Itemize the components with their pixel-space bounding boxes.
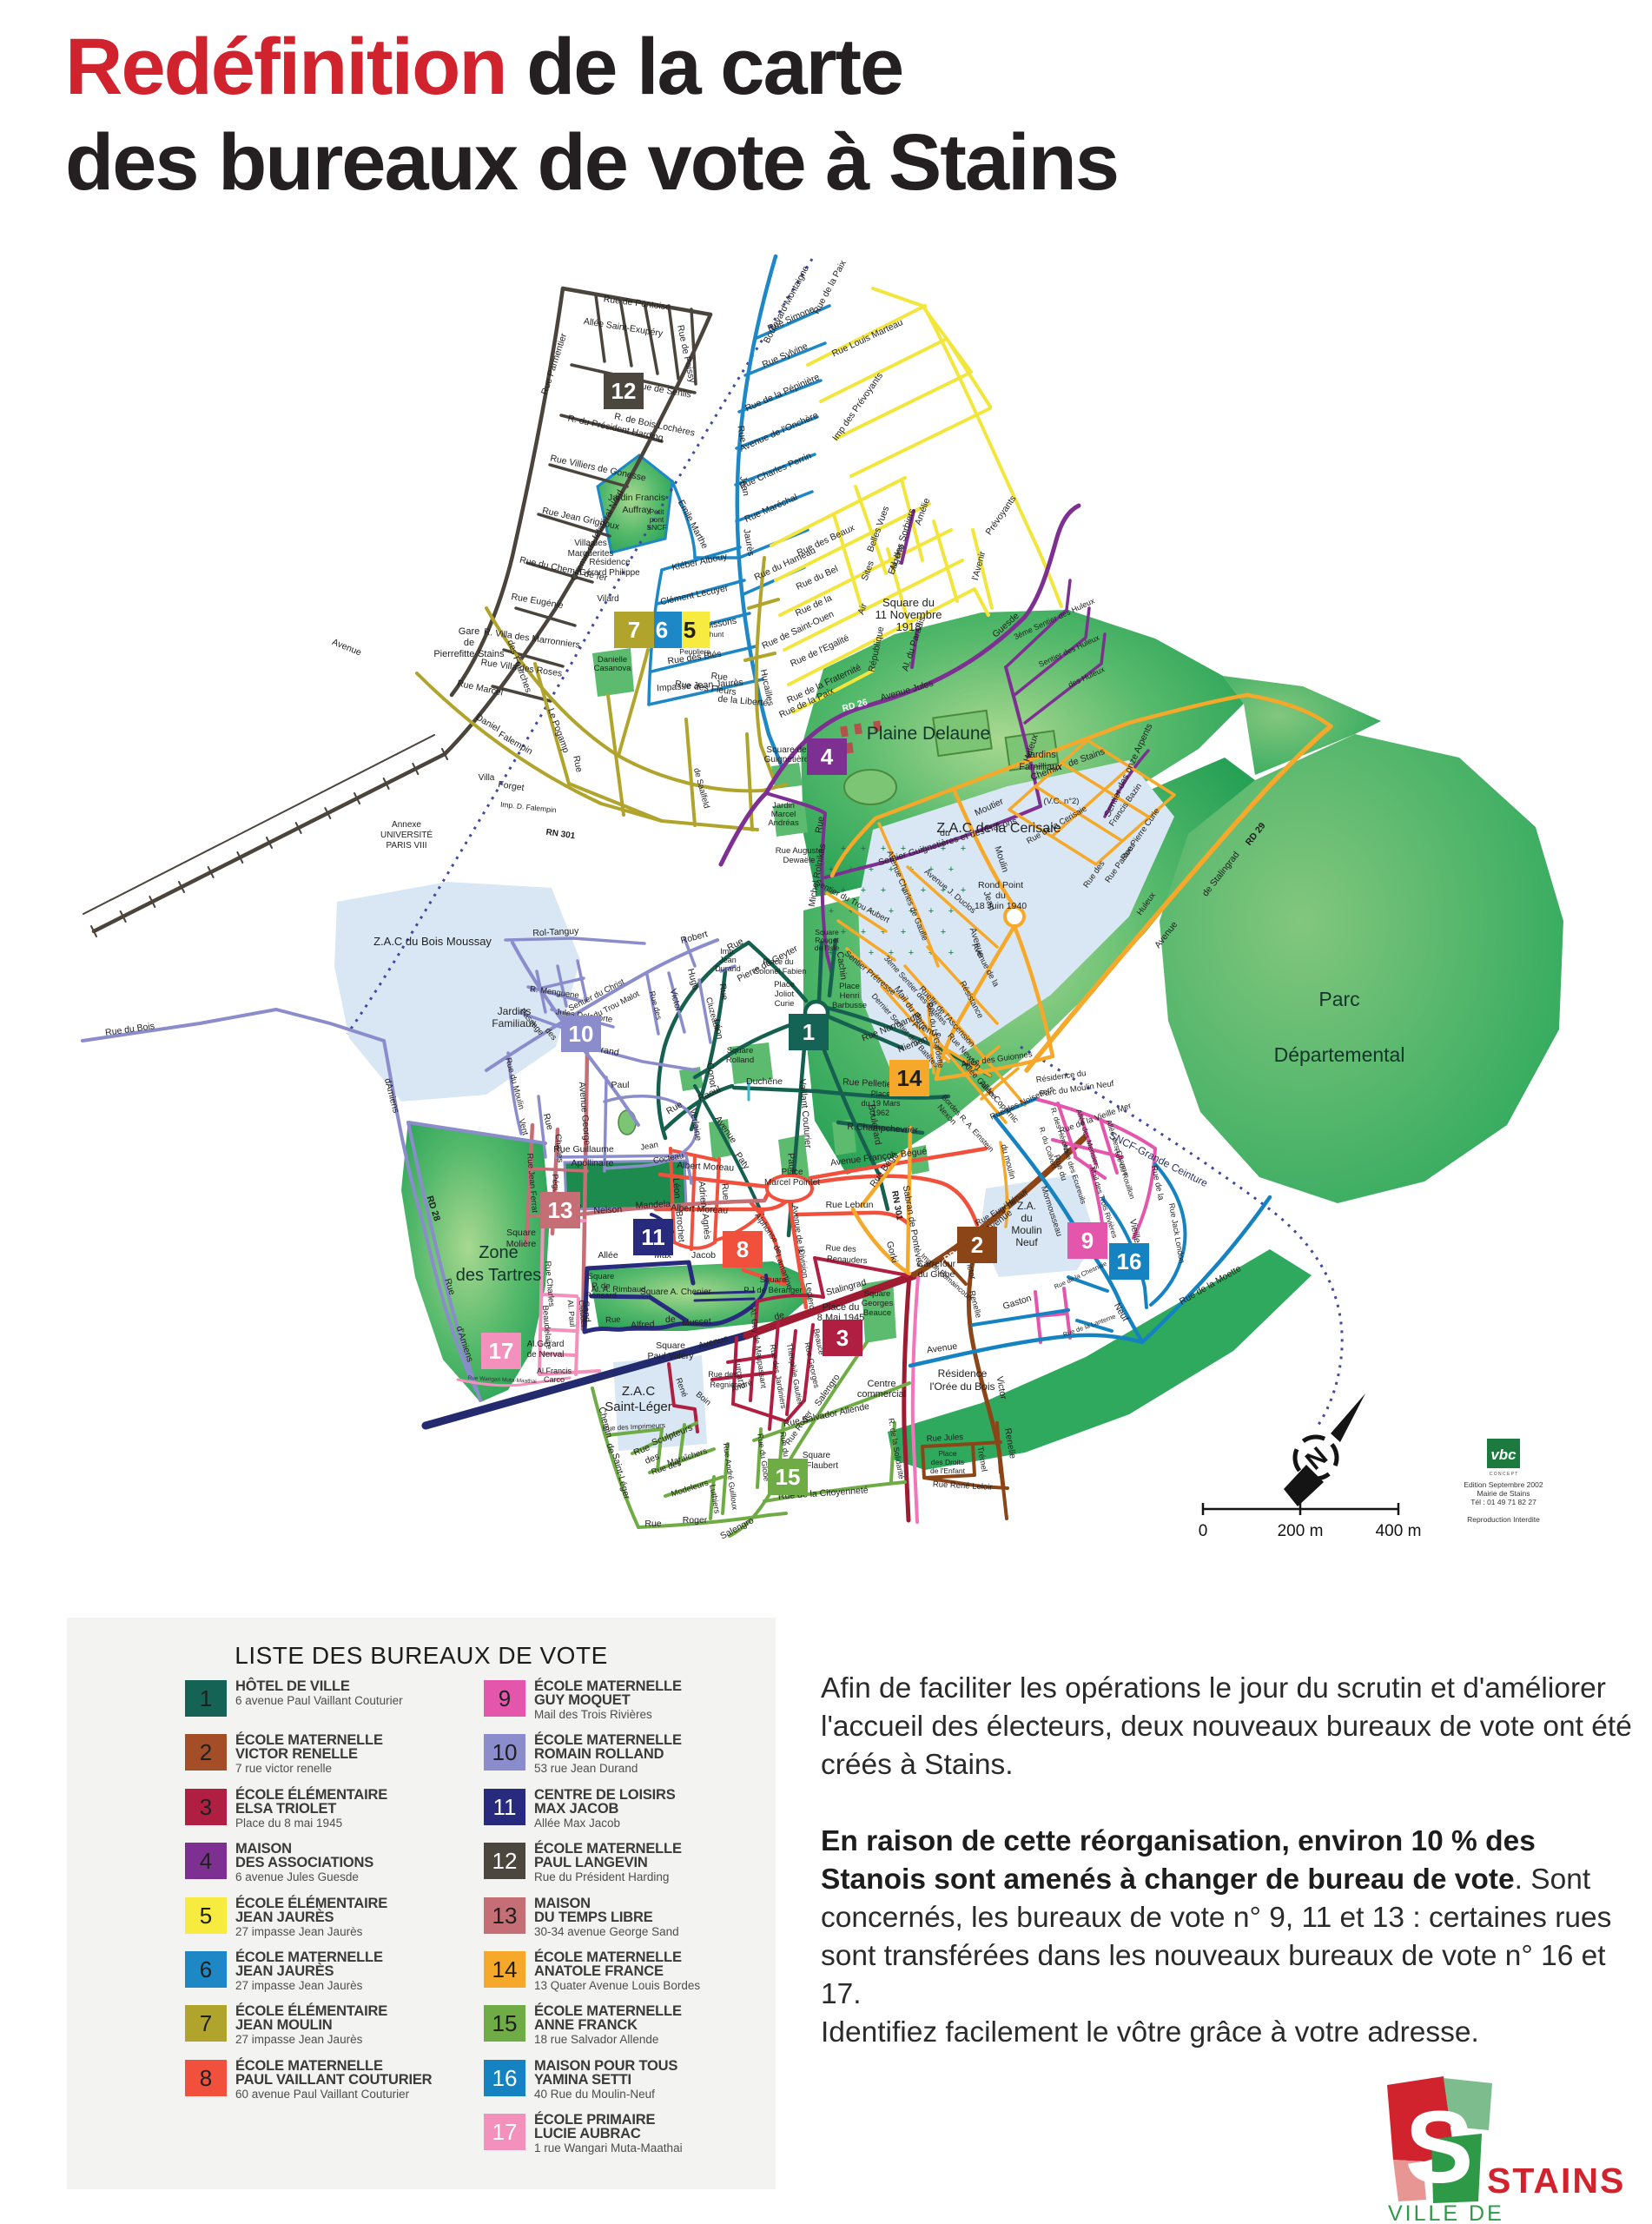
svg-text:0: 0 [1199, 1522, 1208, 1540]
map-label: Rolland [726, 1056, 754, 1065]
legend-item-name: MAX JACOB [534, 1802, 795, 1816]
map-label: PARIS VIII [386, 841, 426, 851]
map-label: des Droits [931, 1458, 964, 1466]
legend-color-square: 2 [185, 1734, 227, 1771]
legend-item-name: ÉCOLE ÉLÉMENTAIRE [235, 2004, 496, 2018]
map-label: Rue des [708, 1370, 737, 1379]
map-label: Zone [479, 1243, 519, 1262]
map-label: Joliot [775, 990, 795, 999]
map-label: Square [760, 1275, 787, 1285]
legend-color-square: 4 [185, 1843, 227, 1879]
map-label: Rue Lebrun [826, 1200, 874, 1210]
map-label: Curie [775, 999, 795, 1009]
legend-item-address: 7 rue victor renelle [235, 1762, 496, 1775]
legend-item-text: ÉCOLE MATERNELLEANATOLE FRANCE13 Quater … [534, 1950, 795, 1992]
legend-color-square: 5 [185, 1897, 227, 1934]
legend-item-name: GUY MOQUET [534, 1693, 795, 1707]
map-label: Square [864, 1289, 891, 1299]
map-label: Beauce [863, 1308, 891, 1318]
map-label: SNCF [646, 523, 666, 532]
svg-text:C O N C E P T: C O N C E P T [1490, 1472, 1518, 1477]
map-label: Rue Sylvine [761, 341, 809, 370]
svg-text:Reproduction Interdite: Reproduction Interdite [1467, 1515, 1540, 1524]
map-label: du Globe [918, 1269, 955, 1280]
svg-text:+: + [869, 948, 874, 958]
legend-item-address: 27 impasse Jean Jaurès [235, 1925, 496, 1938]
svg-text:2: 2 [971, 1232, 983, 1258]
map-label: Rue du Bois [104, 1021, 155, 1038]
map-label: Auffray [622, 505, 651, 515]
legend-item-11: 11CENTRE DE LOISIRSMAX JACOBAllée Max Ja… [484, 1789, 814, 1841]
map-label: Al. Paul [566, 1300, 578, 1327]
map-label: Z.A.C [622, 1384, 656, 1399]
map-marker-12: 12 [604, 373, 644, 409]
legend-item-text: HÔTEL DE VILLE6 avenue Paul Vaillant Cou… [235, 1679, 496, 1707]
map-label: Andréas [768, 818, 799, 828]
scale-bar [1203, 1503, 1398, 1515]
map-label: du [1021, 1212, 1032, 1224]
map-label: Square [656, 1340, 685, 1351]
legend-color-square: 11 [484, 1789, 525, 1825]
map-label: Rue René Leloir [933, 1479, 993, 1493]
map-marker-9: 9 [1067, 1222, 1107, 1259]
map-label: de Nerval [527, 1350, 565, 1360]
svg-text:+: + [928, 906, 934, 917]
map-label: Rue Guillaume [553, 1144, 614, 1155]
legend-item-name: ÉCOLE MATERNELLE [235, 1950, 496, 1964]
map-label: Agnès [700, 1213, 713, 1240]
map-label: Parc [1318, 988, 1359, 1010]
legend-item-text: ÉCOLE MATERNELLEVICTOR RENELLE7 rue vict… [235, 1733, 496, 1775]
legend-color-square: 1 [185, 1680, 227, 1717]
map-label: Jaurès [741, 528, 756, 557]
legend-item-12: 12ÉCOLE MATERNELLEPAUL LANGEVINRue du Pr… [484, 1843, 814, 1895]
legend-item-text: CENTRE DE LOISIRSMAX JACOBAllée Max Jaco… [534, 1788, 795, 1830]
map-label: Duchêne [746, 1076, 783, 1087]
title-highlight: Redéfinition [65, 23, 506, 111]
map-label: Centre [867, 1379, 895, 1389]
legend-item-16: 16MAISON POUR TOUSYAMINA SETTI40 Rue du … [484, 2060, 814, 2112]
legend-item-address: 6 avenue Jules Guesde [235, 1870, 496, 1883]
legend-item-name: YAMINA SETTI [534, 2073, 795, 2087]
legend-item-15: 15ÉCOLE MATERNELLEANNE FRANCK18 rue Salv… [484, 2005, 814, 2057]
svg-text:+: + [861, 844, 866, 854]
map-label: Al.Gérard [527, 1340, 565, 1349]
map-label: Jardins [1025, 750, 1056, 760]
map-label: Verlaine [688, 1108, 704, 1142]
compass: N [1284, 1393, 1365, 1506]
svg-text:+: + [948, 948, 954, 958]
legend-item-name: JEAN MOULIN [235, 2018, 496, 2032]
svg-text:+: + [921, 885, 926, 896]
map-marker-3: 3 [823, 1320, 862, 1356]
map-label: Victor [668, 988, 684, 1013]
map-marker-15: 15 [768, 1459, 808, 1495]
page-title: Redéfinition de la carte des bureaux de … [65, 19, 1118, 210]
legend-item-name: PAUL LANGEVIN [534, 1856, 795, 1870]
map-label: Square [588, 1272, 615, 1281]
map-label: Neuf [1015, 1236, 1038, 1248]
legend-item-name: ELSA TRIOLET [235, 1802, 496, 1816]
legend-item-address: 6 avenue Paul Vaillant Couturier [235, 1694, 496, 1707]
legend-item-8: 8ÉCOLE MATERNELLEPAUL VAILLANT COUTURIER… [185, 2060, 515, 2112]
legend-color-square: 14 [484, 1951, 525, 1988]
map-label: de l'Enfant [930, 1466, 966, 1475]
legend-item-name: VICTOR RENELLE [235, 1747, 496, 1761]
svg-text:400 m: 400 m [1376, 1522, 1422, 1540]
legend-color-square: 8 [185, 2060, 227, 2096]
map-label: de l'Isle [815, 943, 840, 952]
legend-item-name: ÉCOLE MATERNELLE [534, 1733, 795, 1747]
legend-item-3: 3ÉCOLE ÉLÉMENTAIREELSA TRIOLETPlace du 8… [185, 1789, 515, 1841]
map-label: Avenue George [577, 1082, 592, 1146]
legend-item-17: 17ÉCOLE PRIMAIRELUCIE AUBRAC1 rue Wangar… [484, 2114, 814, 2166]
info-paragraph-1: Afin de faciliter les opérations le jour… [821, 1670, 1637, 1784]
legend-item-name: ÉCOLE ÉLÉMENTAIRE [235, 1788, 496, 1802]
map-label: Square [506, 1228, 536, 1238]
legend-item-text: ÉCOLE MATERNELLEROMAIN ROLLAND53 rue Jea… [534, 1733, 795, 1775]
map-label: Renauders [827, 1254, 868, 1266]
map-label: Carrefour [917, 1259, 956, 1269]
legend-color-square: 17 [484, 2114, 525, 2150]
legend-color-square: 6 [185, 1951, 227, 1988]
map-label: Résidence du [1035, 1069, 1087, 1085]
map-label: Rue [710, 671, 728, 683]
legend-item-text: ÉCOLE MATERNELLEJEAN JAURÈS27 impasse Je… [235, 1950, 496, 1992]
map-marker-10: 10 [561, 1016, 601, 1052]
map-label: Résidence [938, 1367, 988, 1380]
map-label: du 19 Mars [861, 1099, 901, 1108]
svg-text:5: 5 [684, 617, 696, 643]
map-label: Place [839, 982, 860, 991]
map-label: Rue des [648, 990, 664, 1021]
map-label: Résidence [589, 558, 631, 567]
legend-item-address: Rue du Président Harding [534, 1870, 795, 1883]
legend-item-text: ÉCOLE MATERNELLEGUY MOQUETMail des Trois… [534, 1679, 795, 1721]
legend-item-address: Allée Max Jacob [534, 1817, 795, 1830]
legend-item-address: 1 rue Wangari Muta-Maathai [534, 2141, 795, 2154]
legend-item-text: MAISONDU TEMPS LIBRE30-34 avenue George … [534, 1896, 795, 1938]
info-text: Afin de faciliter les opérations le jour… [821, 1670, 1637, 2052]
map-label: Place du [823, 1302, 860, 1313]
svg-text:Tél : 01 49 71 82 27: Tél : 01 49 71 82 27 [1470, 1498, 1536, 1506]
map-label: Jardins [498, 1005, 532, 1017]
legend-item-text: MAISON POUR TOUSYAMINA SETTI40 Rue du Mo… [534, 2059, 795, 2101]
map-label: Maraîchers [666, 1446, 709, 1468]
svg-text:+: + [841, 927, 846, 937]
map-label: Air [856, 601, 869, 616]
map-marker-11: 11 [633, 1219, 673, 1255]
map-label: Nelson [593, 1204, 622, 1216]
legend-column-2: 9ÉCOLE MATERNELLEGUY MOQUETMail des Troi… [484, 1618, 814, 2189]
legend-item-name: DU TEMPS LIBRE [534, 1910, 795, 1924]
map-label: UNIVERSITÉ [380, 829, 433, 840]
map-label: Familiaux [492, 1017, 536, 1029]
map-label: Léon [671, 1178, 683, 1199]
map-marker-14: 14 [889, 1060, 929, 1096]
legend-item-address: 13 Quater Avenue Louis Bordes [534, 1979, 795, 1992]
map-label: Rue Louis Marteau [830, 317, 905, 359]
legend-item-name: ÉCOLE MATERNELLE [534, 1842, 795, 1856]
map-label: Rue de la Pépinière [743, 372, 821, 414]
map-label: Henri [840, 991, 860, 1001]
map-label: Square des [766, 745, 810, 755]
svg-text:Edition Septembre 2002: Edition Septembre 2002 [1464, 1480, 1543, 1489]
map-label: Avenue [330, 637, 362, 658]
map-label: Regnieres [710, 1380, 746, 1389]
svg-text:+: + [948, 864, 954, 875]
map-label: R. du Colvert [1037, 1126, 1059, 1170]
map-label: Rond Point [978, 880, 1023, 890]
svg-text:11: 11 [641, 1224, 665, 1250]
legend-item-10: 10ÉCOLE MATERNELLEROMAIN ROLLAND53 rue J… [484, 1734, 814, 1786]
legend-item-name: CENTRE DE LOISIRS [534, 1788, 795, 1802]
map-label: Square A. Chenier [640, 1287, 711, 1297]
map-label: du moulin [999, 1143, 1017, 1181]
map-marker-8: 8 [723, 1231, 763, 1268]
map-label: Départemental [1274, 1043, 1405, 1066]
map-marker-4: 4 [807, 738, 847, 775]
map-label: Forget [498, 779, 525, 793]
map-label: Falempin [497, 729, 535, 757]
map-label: Pierrefitte-Stains [433, 649, 505, 659]
map-label: Z.A.C de la Cerisaie [936, 821, 1061, 836]
legend-item-5: 5ÉCOLE ÉLÉMENTAIREJEAN JAURÈS27 impasse … [185, 1897, 515, 1949]
map-label: Vilard [597, 594, 618, 604]
map-label: Familliaux [1019, 762, 1062, 772]
legend-item-name: PAUL VAILLANT COUTURIER [235, 2073, 496, 2087]
map-label: Jean [719, 956, 737, 964]
legend-item-address: 30-34 avenue George Sand [534, 1925, 795, 1938]
map-label: Jacob [691, 1250, 716, 1261]
scale-labels: 0 200 m 400 m [1199, 1522, 1422, 1540]
svg-text:+: + [901, 927, 906, 937]
map-label: 11 Novembre [875, 608, 942, 621]
legend-color-square: 16 [484, 2060, 525, 2096]
map-label: RN 301 [545, 828, 577, 842]
stadium-icon [618, 1110, 636, 1135]
legend-item-text: ÉCOLE MATERNELLEPAUL LANGEVINRue du Prés… [534, 1842, 795, 1883]
svg-text:12: 12 [611, 378, 637, 404]
map-label: Modeleurs [670, 1478, 710, 1499]
legend-item-text: ÉCOLE MATERNELLEANNE FRANCK18 rue Salvad… [534, 2004, 795, 2046]
map-label: Rue [644, 1519, 661, 1529]
logo-ville-de-text: VILLE DE [1388, 2201, 1504, 2224]
map-label: Rue [735, 425, 748, 443]
svg-text:16: 16 [1117, 1248, 1142, 1274]
map-label: des Tartres [456, 1266, 542, 1285]
svg-text:1: 1 [803, 1019, 815, 1045]
map-label: Al. A. Rimbaud [591, 1285, 646, 1294]
legend-item-name: HÔTEL DE VILLE [235, 1679, 496, 1693]
legend-color-square: 7 [185, 2005, 227, 2042]
map-label: Al.Francis [537, 1367, 572, 1375]
map-label: du [995, 890, 1006, 901]
legend-item-name: ANATOLE FRANCE [534, 1964, 795, 1978]
map-label: Rue des [825, 1243, 856, 1254]
map-label: Imp. D. Falempin [500, 800, 558, 815]
legend-item-name: MAISON [534, 1896, 795, 1910]
legend-color-square: 9 [484, 1680, 525, 1717]
legend-item-address: 18 rue Salvador Allende [534, 2033, 795, 2046]
legend-column-1: 1HÔTEL DE VILLE6 avenue Paul Vaillant Co… [185, 1618, 515, 2189]
map-label: Z.A.C du Bois Moussay [373, 935, 492, 948]
map-label: Roger [683, 1515, 708, 1526]
map-label: de [665, 1314, 676, 1326]
legend-item-text: MAISONDES ASSOCIATIONS6 avenue Jules Gue… [235, 1842, 496, 1883]
map-label: Square du [882, 596, 935, 609]
map-label: Luthiers [707, 1484, 722, 1514]
map-label: Square [727, 1046, 754, 1056]
svg-text:10: 10 [569, 1021, 594, 1047]
svg-text:+: + [861, 885, 866, 896]
legend-item-text: ÉCOLE PRIMAIRELUCIE AUBRAC1 rue Wangari … [534, 2113, 795, 2154]
svg-text:13: 13 [548, 1197, 573, 1223]
title-rest: de la carte [506, 23, 903, 111]
map-label: Musset [682, 1316, 712, 1328]
map-label: Place [871, 1089, 891, 1098]
legend-item-name: DES ASSOCIATIONS [235, 1856, 496, 1870]
map-label: Place [774, 980, 795, 990]
map-label: Paul Valéry [648, 1351, 695, 1361]
map-label: 18 Juin 1940 [975, 901, 1027, 911]
legend-item-4: 4MAISONDES ASSOCIATIONS6 avenue Jules Gu… [185, 1843, 515, 1895]
map-label: Durand [715, 964, 741, 973]
map-label: Georges [862, 1299, 894, 1308]
map-label: Place [781, 1168, 803, 1177]
map-marker-2: 2 [957, 1227, 997, 1263]
legend-item-text: ÉCOLE ÉLÉMENTAIREELSA TRIOLETPlace du 8 … [235, 1788, 496, 1830]
map-label: Marguerites [568, 549, 614, 559]
map-label: Sites [860, 559, 876, 582]
legend-item-name: ÉCOLE ÉLÉMENTAIRE [235, 1896, 496, 1910]
map-label: Casanova [594, 664, 631, 673]
map-label: Jardin Francis [608, 493, 665, 503]
svg-text:15: 15 [776, 1464, 801, 1490]
map-label: Rue Maréchal [743, 492, 799, 525]
map-label: Z.A. [1017, 1200, 1036, 1212]
map-label: Barbusse [832, 1001, 867, 1010]
legend-item-name: ROMAIN ROLLAND [534, 1747, 795, 1761]
map-label: Saint-Léger [610, 1452, 632, 1500]
map-label: l'Orée du Bois [930, 1380, 995, 1393]
map-label: Rue [719, 1183, 731, 1201]
legend-item-name: ÉCOLE MATERNELLE [534, 1950, 795, 1964]
map-label: Saint-Léger [605, 1400, 672, 1414]
stains-logo: S STAINS VILLE DE [1355, 2068, 1642, 2224]
map-label: Rue de Pontoise [603, 294, 671, 312]
legend-color-square: 3 [185, 1789, 227, 1825]
legend-item-name: MAISON POUR TOUS [534, 2059, 795, 2073]
map-label: Jean [737, 475, 751, 497]
legend-item-address: 27 impasse Jean Jaurès [235, 2033, 496, 2046]
svg-text:Mairie de Stains: Mairie de Stains [1477, 1489, 1530, 1498]
map-marker-7: 7 [614, 612, 654, 648]
map-label: Gaston [1001, 1293, 1033, 1312]
map-label: Rue Auguste [776, 846, 823, 856]
map-label: Rue [571, 755, 585, 773]
poster-page: { "title": {"highlight": "Redéfinition",… [0, 0, 1652, 2224]
map-label: Vent [517, 1118, 531, 1137]
map-label: de [464, 638, 474, 648]
legend-item-name: ÉCOLE MATERNELLE [534, 2004, 795, 2018]
map-label: Place [938, 1449, 957, 1458]
map-label: Avenue de l'Onchère [738, 410, 820, 454]
map-label: Peupliers [679, 647, 710, 656]
map-label: Dewaële [783, 856, 816, 865]
map-label: Moulin [1011, 1224, 1041, 1236]
map-label: Gare [459, 626, 479, 637]
legend-item-name: ÉCOLE MATERNELLE [534, 1679, 795, 1693]
map-label: Clément Lecuyer [659, 583, 730, 607]
logo-stains-text: STAINS [1487, 2161, 1625, 2201]
legend-item-address: 53 rue Jean Durand [534, 1762, 795, 1775]
map-credits: vbc C O N C E P T Edition Septembre 2002… [1464, 1439, 1543, 1524]
map-label: commercial [857, 1389, 906, 1400]
map-label: Villa [479, 773, 495, 783]
svg-text:vbc: vbc [1490, 1446, 1517, 1463]
map-label: Carco [544, 1375, 565, 1384]
legend-item-address: Mail des Trois Rivières [534, 1708, 795, 1721]
map-marker-16: 16 [1109, 1243, 1149, 1280]
map-label: Avenue [926, 1341, 958, 1356]
legend-item-6: 6ÉCOLE MATERNELLEJEAN JAURÈS27 impasse J… [185, 1951, 515, 2003]
map-marker-17: 17 [481, 1333, 521, 1369]
map-label: Jean [639, 1140, 658, 1152]
map-label: Place du [763, 957, 793, 966]
map-label: Hugo [685, 968, 701, 992]
map-label: 1962 [872, 1109, 889, 1117]
map-label: 1918 [896, 620, 922, 633]
map-label: Apollinaire [571, 1158, 613, 1168]
map-label: Mandela [635, 1199, 671, 1211]
map-label: Daniel [474, 712, 502, 734]
map-label: Alfred [631, 1319, 655, 1330]
svg-text:17: 17 [489, 1338, 514, 1364]
svg-text:8: 8 [737, 1236, 749, 1262]
legend-panel: LISTE DES BUREAUX DE VOTE 1HÔTEL DE VILL… [67, 1618, 776, 2189]
map-label: Gérard Philippe [579, 568, 640, 578]
legend-color-square: 12 [484, 1843, 525, 1879]
title-line2: des bureaux de vote à Stains [65, 115, 1118, 210]
map-label: Villa des [574, 539, 607, 548]
legend-item-name: ÉCOLE MATERNELLE [235, 2059, 496, 2073]
legend-item-7: 7ÉCOLE ÉLÉMENTAIREJEAN MOULIN27 impasse … [185, 2005, 515, 2057]
legend-item-name: LUCIE AUBRAC [534, 2127, 795, 2141]
legend-item-14: 14ÉCOLE MATERNELLEANATOLE FRANCE13 Quate… [484, 1951, 814, 2003]
svg-text:+: + [829, 906, 834, 917]
map-marker-1: 1 [789, 1014, 829, 1050]
legend-item-text: ÉCOLE MATERNELLEPAUL VAILLANT COUTURIER6… [235, 2059, 496, 2101]
boulevard-maxime-gorki [913, 1277, 918, 1522]
map-label: Guignetières [764, 755, 814, 764]
map-label: (V.C. n°2) [1044, 797, 1080, 806]
legend-item-2: 2ÉCOLE MATERNELLEVICTOR RENELLE7 rue vic… [185, 1734, 515, 1786]
map-label: Imp. [720, 947, 736, 956]
map-label: Rue [605, 1315, 621, 1326]
legend-color-square: 15 [484, 2005, 525, 2042]
map-label: Rue [717, 983, 730, 1001]
legend-item-name: JEAN JAURÈS [235, 1964, 496, 1978]
map-label: Annexe [392, 820, 421, 830]
legend-item-address: 40 Rue du Moulin-Neuf [534, 2088, 795, 2101]
info-p2-bold: En raison de cette réorganisation, envir… [821, 1825, 1536, 1896]
legend-item-9: 9ÉCOLE MATERNELLEGUY MOQUETMail des Troi… [484, 1680, 814, 1732]
svg-text:4: 4 [821, 744, 834, 770]
legend-item-name: JEAN JAURÈS [235, 1910, 496, 1924]
legend-item-address: Place du 8 mai 1945 [235, 1817, 496, 1830]
svg-text:+: + [941, 927, 946, 937]
